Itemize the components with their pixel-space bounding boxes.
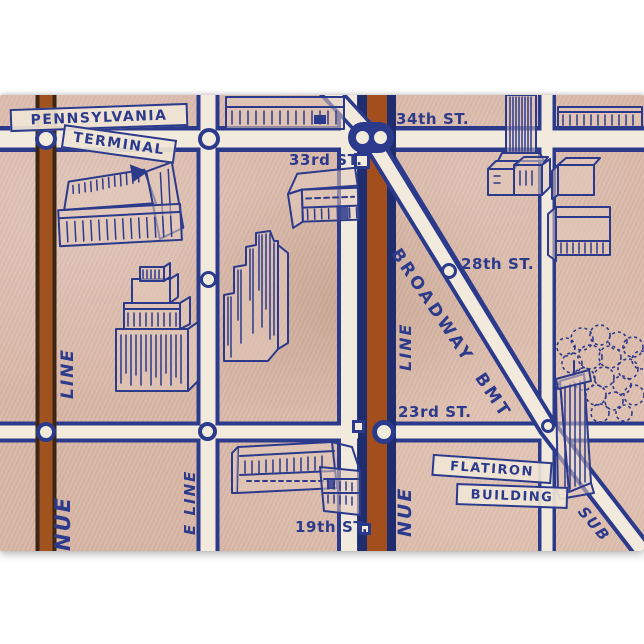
product-photo: { "map": { "description": "vintage-new-y…: [0, 0, 644, 644]
ziggurat-store-illustration: [116, 263, 198, 391]
station-circle: [356, 131, 369, 144]
arcade-row-illustration: [226, 97, 344, 129]
right-block-lower-illustration: [548, 207, 610, 261]
station-34th-7av: [198, 128, 220, 150]
label-trunk-avenue: NUE: [394, 461, 416, 537]
label-left-line: LINE: [58, 327, 78, 399]
label-seventh-ave-line: E LINE: [181, 443, 199, 535]
station-28th-7av: [200, 271, 217, 288]
station-28th-broadway: [441, 263, 457, 279]
stepped-skyscraper-illustration: [224, 231, 288, 361]
station-23rd-trunk: [372, 420, 396, 444]
vintage-map-cutting-board: PENNSYLVANIA TERMINAL FLATIRON BUILDING …: [0, 95, 644, 551]
station-flatiron-broadway: [541, 419, 555, 433]
station-23rd-square: [352, 420, 365, 433]
label-28th-st: 28th ST.: [461, 255, 534, 273]
station-34th-express-double: [348, 122, 394, 153]
label-34th-st: 34th ST.: [396, 110, 469, 128]
right-block-upper-illustration: [552, 158, 600, 199]
station-circle: [374, 131, 387, 144]
flatiron-banner-line2: BUILDING: [456, 483, 569, 509]
label-left-avenue: NUE: [51, 473, 75, 551]
label-trunk-line: LINE: [396, 301, 415, 371]
label-33rd-st: 33rd ST.: [289, 151, 363, 169]
top-right-row-illustration: [558, 107, 642, 127]
penn-terminal-illustration: [56, 162, 184, 246]
station-23rd-7av: [198, 422, 217, 441]
bottom-complex-illustration: [232, 442, 360, 515]
right-tall-building-illustration: [488, 95, 550, 195]
flatiron-building-illustration: [556, 361, 594, 499]
station-34th-8av: [35, 128, 57, 150]
label-23rd-st: 23rd ST.: [398, 403, 472, 421]
label-19th-st: 19th ST.: [295, 518, 368, 536]
station-23rd-8av: [36, 422, 56, 442]
building-33rd-illustration: [287, 168, 359, 228]
